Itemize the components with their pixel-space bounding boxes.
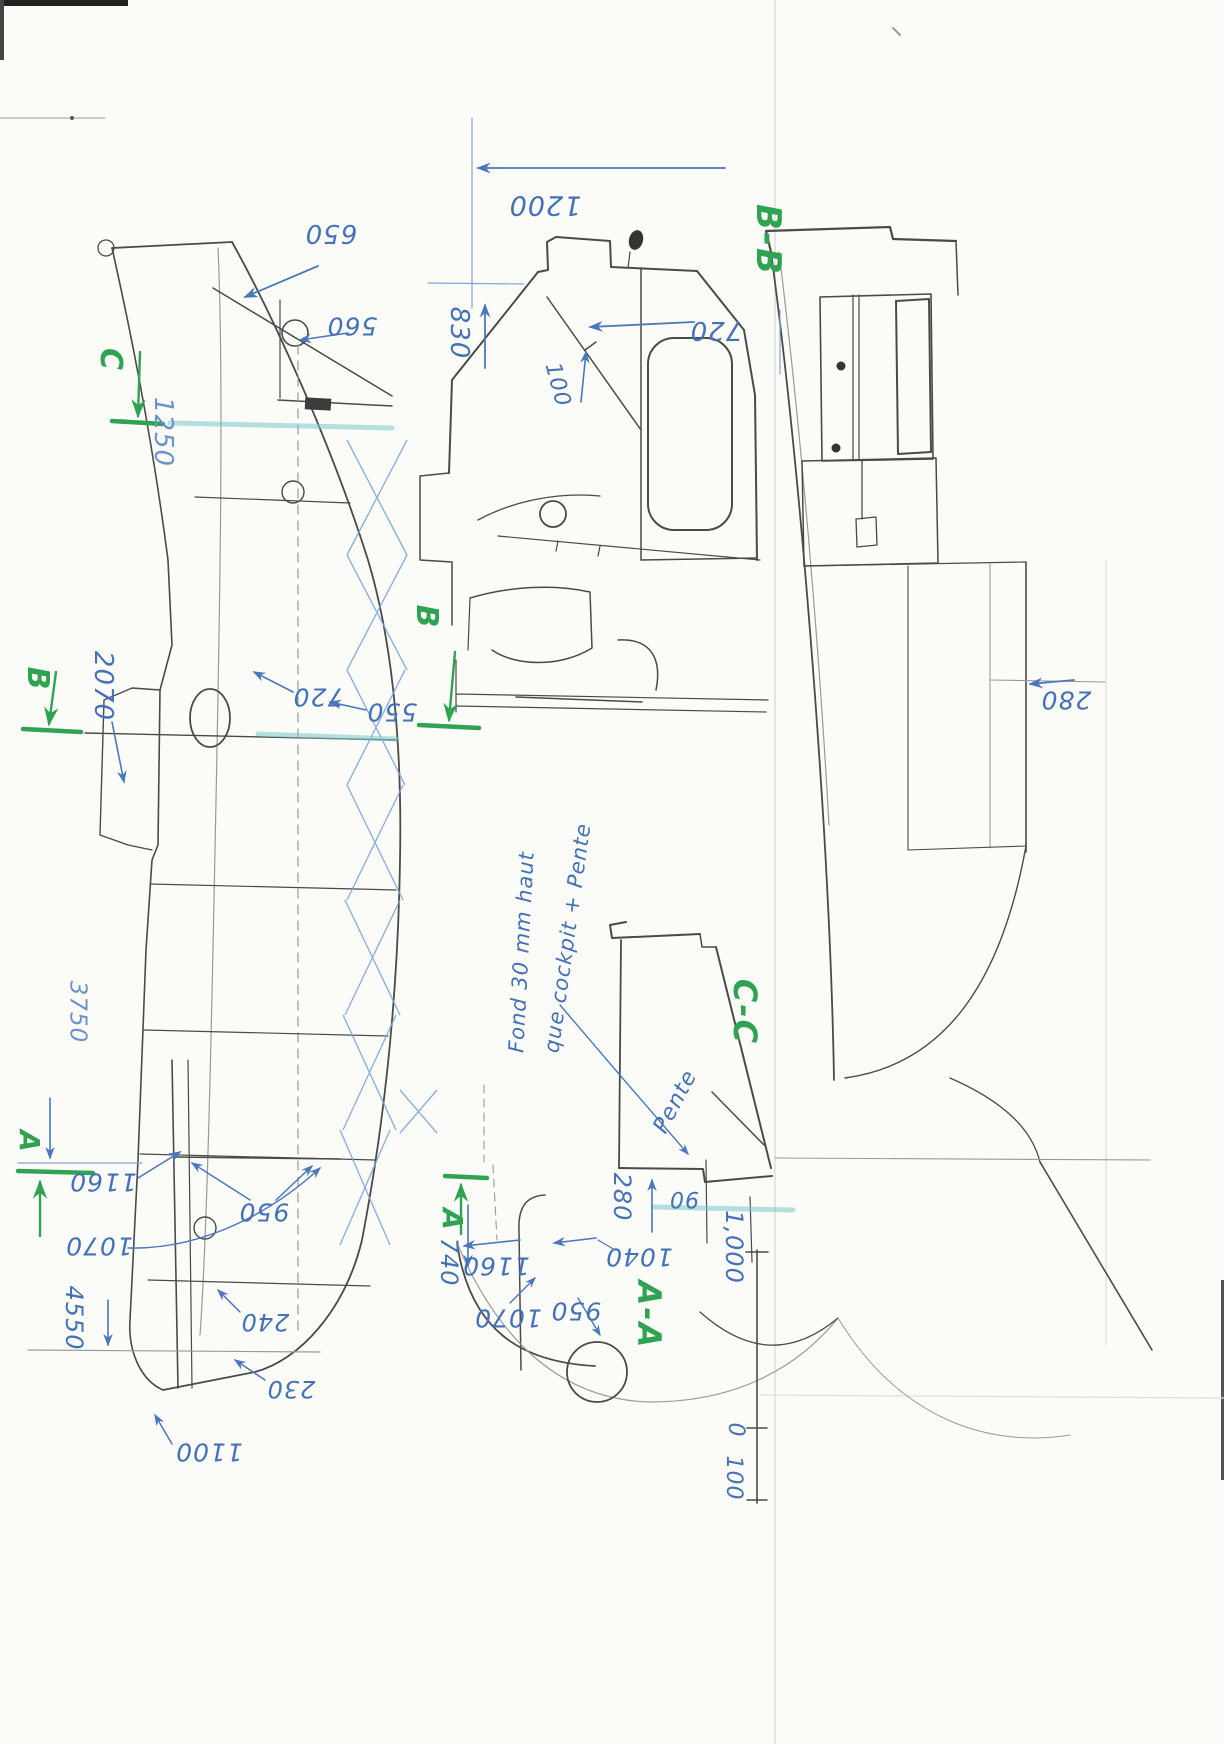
profile-view-drawing bbox=[766, 227, 1152, 1350]
drawing-linework bbox=[0, 0, 1224, 1744]
paper-artifacts bbox=[0, 0, 1224, 1744]
green-section-arrows bbox=[18, 352, 487, 1236]
scanned-drawing-sheet: 120083010072065056012502070720550280Fond… bbox=[0, 0, 1224, 1744]
dimension-arrows bbox=[18, 118, 1074, 1444]
highlighter-marks bbox=[170, 423, 793, 1210]
side-view-drawing bbox=[28, 240, 437, 1390]
section-cc-drawing bbox=[610, 922, 772, 1243]
